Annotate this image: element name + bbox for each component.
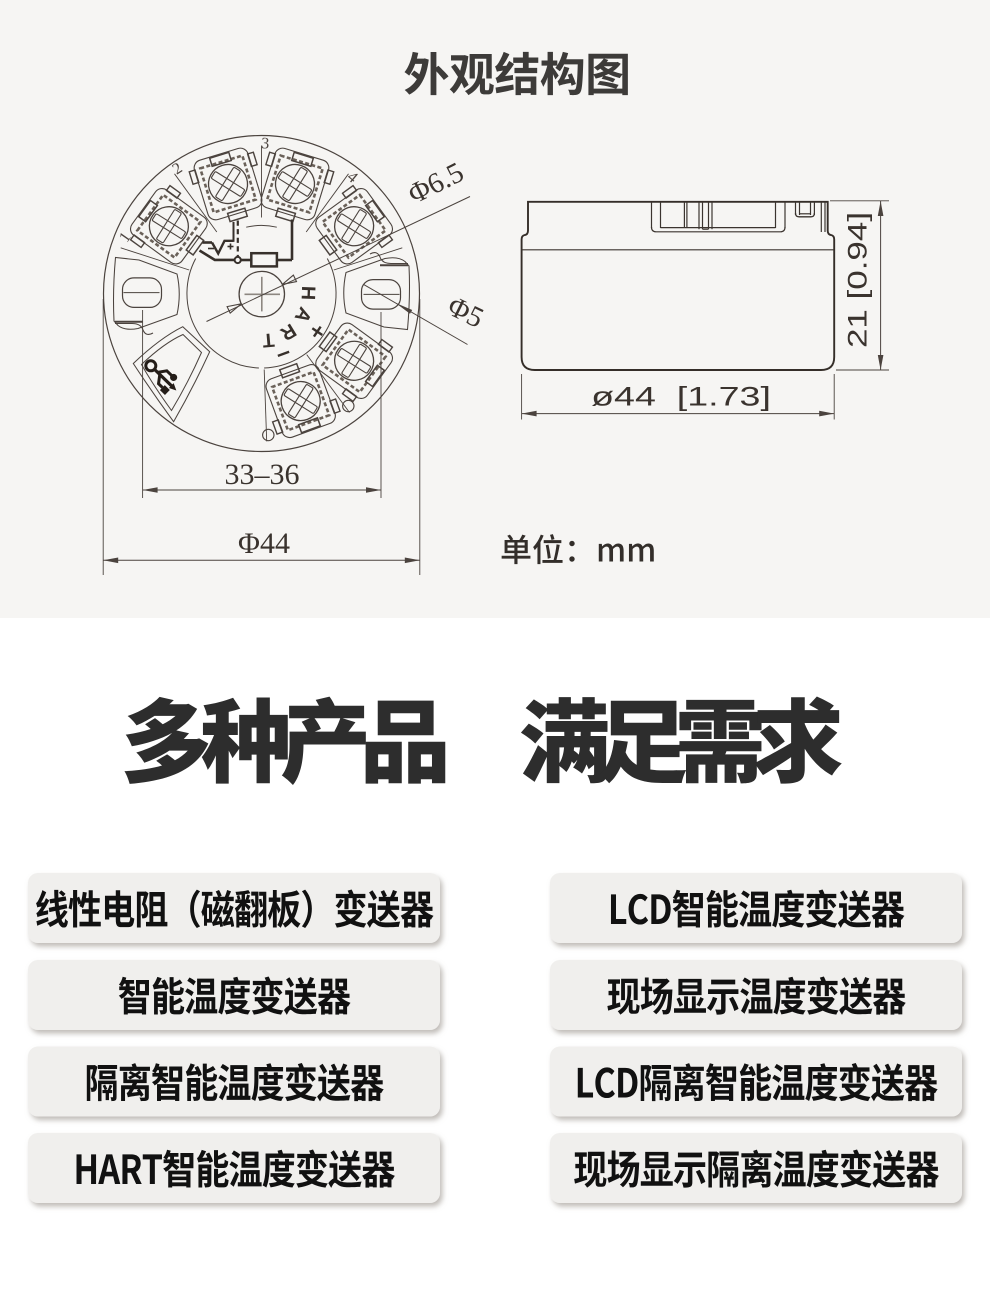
svg-text:3: 3 xyxy=(261,135,270,152)
svg-text:33–36: 33–36 xyxy=(225,458,300,491)
svg-text:Φ44: Φ44 xyxy=(238,527,290,560)
svg-text:ø44 [1.73]: ø44 [1.73] xyxy=(591,382,771,411)
svg-text:21 [0.94]: 21 [0.94] xyxy=(843,212,873,348)
